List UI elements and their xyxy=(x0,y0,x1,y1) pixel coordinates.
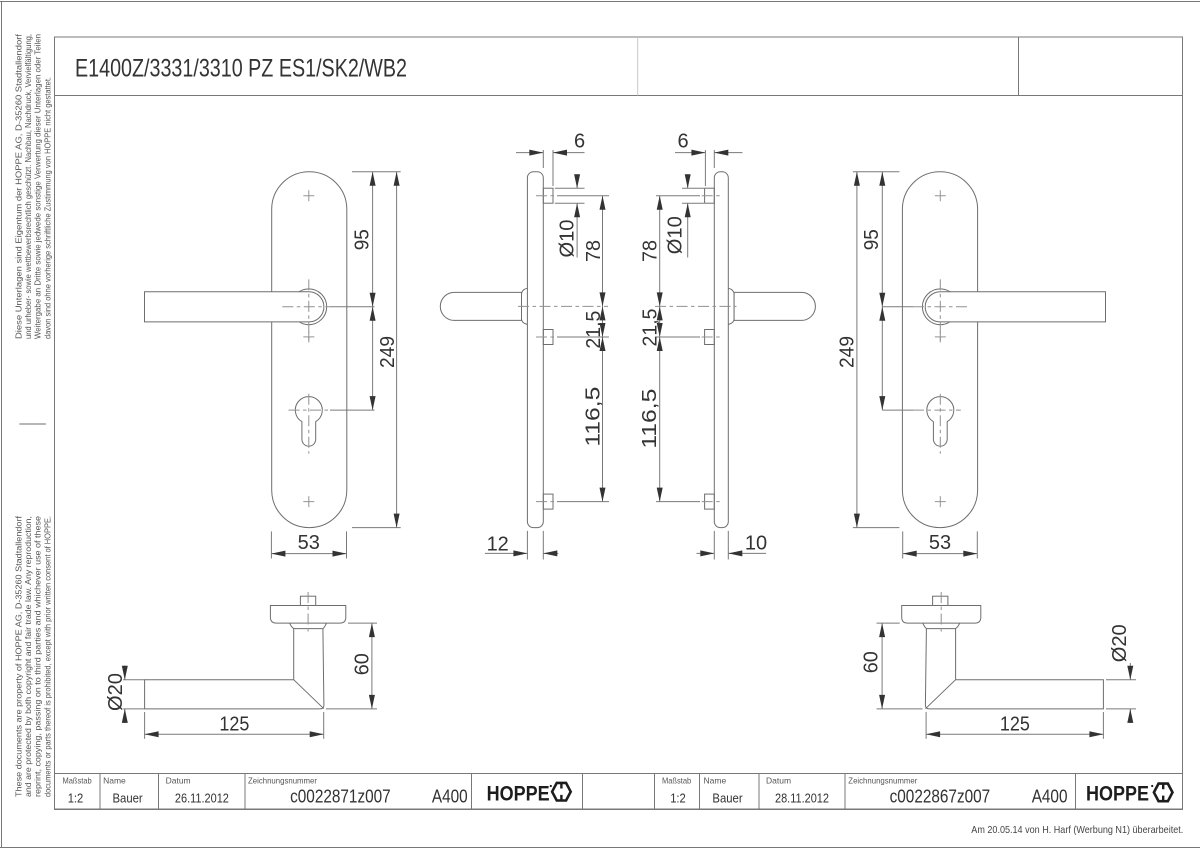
svg-text:E1400Z/3331/3310 PZ ES1/SK2/WB: E1400Z/3331/3310 PZ ES1/SK2/WB2 xyxy=(75,55,407,83)
svg-text:HOPPE: HOPPE xyxy=(487,782,550,806)
svg-text:116,5: 116,5 xyxy=(639,389,661,449)
svg-text:c0022867z007: c0022867z007 xyxy=(890,787,991,807)
svg-text:Maßstab: Maßstab xyxy=(63,776,92,786)
svg-text:125: 125 xyxy=(219,713,249,735)
svg-text:davon sind ohne vorherige schr: davon sind ohne vorherige schriftliche Z… xyxy=(43,77,52,339)
svg-text:und urheber- sowie wettbewerbs: und urheber- sowie wettbewerbsrechtlich … xyxy=(24,34,33,339)
svg-text:95: 95 xyxy=(861,229,883,250)
svg-text:Bauer: Bauer xyxy=(113,791,144,806)
svg-text:60: 60 xyxy=(352,653,374,675)
svg-text:Ø10: Ø10 xyxy=(664,216,686,254)
svg-text:Zeichnungsnummer: Zeichnungsnummer xyxy=(248,776,317,786)
svg-text:Datum: Datum xyxy=(166,776,191,786)
svg-text:78: 78 xyxy=(640,240,662,262)
svg-text:60: 60 xyxy=(861,651,883,673)
svg-text:1:2: 1:2 xyxy=(68,791,84,806)
svg-text:Zeichnungsnummer: Zeichnungsnummer xyxy=(848,776,917,786)
svg-text:Ø20: Ø20 xyxy=(105,673,127,711)
svg-text:These documents are property o: These documents are property of HOPPE AG… xyxy=(15,515,24,797)
svg-text:249: 249 xyxy=(377,336,399,368)
svg-text:53: 53 xyxy=(298,532,320,554)
svg-text:Name: Name xyxy=(704,776,727,786)
svg-text:and are protected by both copy: and are protected by both copyright and … xyxy=(24,516,33,797)
svg-text:Diese Unterlagen sind Eigentum: Diese Unterlagen sind Eigentum der HOPPE… xyxy=(15,33,24,339)
svg-text:1:2: 1:2 xyxy=(670,791,686,806)
svg-text:26.11.2012: 26.11.2012 xyxy=(175,791,229,806)
svg-text:12: 12 xyxy=(487,534,509,556)
svg-text:249: 249 xyxy=(837,336,859,368)
svg-text:Name: Name xyxy=(103,776,126,786)
svg-text:Am 20.05.14 von H. Harf (Werbu: Am 20.05.14 von H. Harf (Werbung N1) übe… xyxy=(971,824,1183,836)
svg-text:10: 10 xyxy=(745,533,767,555)
svg-text:125: 125 xyxy=(1000,713,1030,735)
svg-text:Bauer: Bauer xyxy=(712,791,743,806)
svg-text:A400: A400 xyxy=(1032,787,1068,807)
svg-text:documents or parts thereof is: documents or parts thereof is prohibited… xyxy=(43,516,52,797)
svg-text:Weitergabe an Dritte sowie jed: Weitergabe an Dritte sowie jedwede sonst… xyxy=(34,34,43,339)
svg-text:Ø20: Ø20 xyxy=(1109,624,1131,662)
svg-text:21,5: 21,5 xyxy=(640,309,662,347)
svg-text:95: 95 xyxy=(351,229,373,250)
svg-text:c0022871z007: c0022871z007 xyxy=(290,787,391,807)
svg-text:A400: A400 xyxy=(432,787,468,807)
svg-text:Maßstab: Maßstab xyxy=(662,776,691,786)
svg-text:Ø10: Ø10 xyxy=(557,220,579,258)
svg-text:6: 6 xyxy=(677,131,688,153)
svg-text:78: 78 xyxy=(583,240,605,262)
svg-text:53: 53 xyxy=(929,532,951,554)
svg-text:28.11.2012: 28.11.2012 xyxy=(775,791,829,806)
svg-text:116,5: 116,5 xyxy=(582,387,604,447)
svg-text:HOPPE: HOPPE xyxy=(1086,782,1149,806)
svg-text:6: 6 xyxy=(574,131,585,153)
svg-text:Datum: Datum xyxy=(766,776,791,786)
svg-text:reprint, copying, passing on t: reprint, copying, passing on to third pa… xyxy=(34,516,43,797)
